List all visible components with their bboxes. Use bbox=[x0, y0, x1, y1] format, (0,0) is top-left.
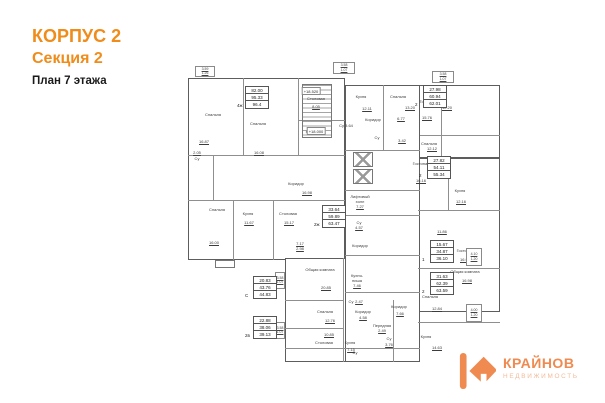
apartment-area-value: 36.10 bbox=[431, 255, 453, 262]
balcony: 4.101.20 bbox=[466, 248, 482, 266]
room-label: Общая комната bbox=[305, 268, 334, 272]
balcony: 3.581.07 bbox=[333, 62, 355, 74]
room-label: Столовая bbox=[315, 341, 333, 345]
apartment-area-value: 63.47 bbox=[323, 220, 345, 227]
room-label: Столовая bbox=[307, 97, 325, 101]
room-label: Кухня bbox=[356, 95, 367, 99]
apartment-area-value: 43.76С bbox=[254, 284, 276, 291]
wall bbox=[345, 190, 420, 191]
room-label: 7.27 bbox=[356, 205, 364, 209]
room-label: 12.76 bbox=[325, 319, 335, 323]
apartment-area-value: 15.67 bbox=[431, 241, 453, 248]
apartment-type: 2 bbox=[415, 102, 418, 107]
room-label: 16.16 bbox=[416, 179, 426, 183]
apartment-area-value: 20.83 bbox=[254, 277, 276, 284]
logo-name: КРАЙНОВ bbox=[503, 356, 579, 371]
apartment-info-box: 27.8254.11255.34 bbox=[427, 156, 451, 179]
room-label: Су bbox=[195, 157, 200, 161]
apartment-type: 2 bbox=[419, 173, 422, 178]
logo-k-house-icon bbox=[458, 350, 496, 392]
apartment-type: 2ж bbox=[314, 222, 320, 227]
room-label: 12.11 bbox=[362, 107, 372, 111]
wall bbox=[418, 322, 500, 323]
wall bbox=[188, 155, 345, 156]
room-label: Кухня bbox=[421, 335, 432, 339]
elevator-shaft bbox=[353, 152, 373, 167]
apartment-area-value: 27.82 bbox=[428, 157, 450, 164]
page: КОРПУС 2 Секция 2 План 7 этажа bbox=[0, 0, 605, 403]
wall bbox=[418, 210, 500, 211]
apartment-type: 2в bbox=[245, 333, 250, 338]
room-label: 12.12 bbox=[427, 147, 437, 151]
wall bbox=[285, 328, 343, 329]
room-label: 2.49 bbox=[378, 329, 386, 333]
apartment-area-value: 22.88 bbox=[254, 317, 276, 324]
room-label: Коридор bbox=[355, 310, 371, 314]
room-label: 16.98 bbox=[462, 279, 472, 283]
wall bbox=[233, 200, 234, 260]
room-label: Спальня bbox=[209, 208, 225, 212]
wall bbox=[345, 215, 420, 216]
room-label: Су bbox=[375, 136, 380, 140]
apartment-area-value: 55.34 bbox=[428, 171, 450, 178]
page-header: КОРПУС 2 Секция 2 План 7 этажа bbox=[32, 24, 121, 87]
wall bbox=[345, 150, 420, 151]
room-label: Кухня bbox=[243, 212, 254, 216]
apartment-info-box: 31.6362.39263.59 bbox=[430, 272, 454, 295]
room-label: Кухня bbox=[455, 189, 466, 193]
room-label: 8.05 bbox=[312, 105, 320, 109]
room-label: Су 3.64 bbox=[339, 124, 353, 128]
room-label: 2.98 bbox=[296, 247, 304, 251]
room-label: 7.66 bbox=[396, 312, 404, 316]
room-label: 4.57 bbox=[355, 226, 363, 230]
room-label: Коридор bbox=[391, 305, 407, 309]
room-label: Коридор bbox=[365, 118, 381, 122]
room-label: Коридор bbox=[352, 244, 368, 248]
room-label: 11.86 bbox=[437, 230, 447, 234]
room-label: 15.17 bbox=[284, 221, 294, 225]
apartment-info-box: 27.9860.94262.01 bbox=[423, 85, 447, 108]
balcony: 3.591.26 bbox=[195, 66, 215, 77]
room-label: 20.85 bbox=[321, 286, 331, 290]
logo-subtitle: НЕДВИЖИМОСТЬ bbox=[503, 373, 579, 380]
apartment-area-value: 31.63 bbox=[431, 273, 453, 280]
room-label: Су bbox=[387, 337, 392, 341]
room-label: Кухня bbox=[345, 341, 356, 345]
elevation-mark: +18.520 bbox=[302, 87, 321, 95]
apartment-info-box: 22.8838.062в39.13 bbox=[253, 316, 277, 339]
apartment-type: С bbox=[245, 293, 248, 298]
room-label: 4.58 bbox=[359, 316, 367, 320]
room-label: 3.42 bbox=[398, 139, 406, 143]
apartment-info-box: 15.6734.87136.10 bbox=[430, 240, 454, 263]
apartment-area-value: 38.062в bbox=[254, 324, 276, 331]
room-label: Спальня bbox=[422, 295, 438, 299]
room-label: 12.84 bbox=[432, 307, 442, 311]
balcony: 4.001.20 bbox=[466, 304, 482, 322]
apartment-area-value: 27.98 bbox=[424, 86, 446, 93]
room-label: 13.20 bbox=[405, 106, 415, 110]
floor-plan-title: План 7 этажа bbox=[32, 75, 121, 87]
elevator-shaft bbox=[353, 169, 373, 184]
apartment-info-box: 33.6459.892ж63.47 bbox=[322, 205, 346, 228]
apartment-area-value: 82.00 bbox=[246, 87, 268, 94]
wall bbox=[273, 200, 274, 260]
apartment-area-value: 63.59 bbox=[431, 287, 453, 294]
wall bbox=[285, 300, 343, 301]
room-label: 14.63 bbox=[432, 346, 442, 350]
apartment-info-box: 82.0095.334ж96.4 bbox=[245, 86, 269, 109]
floor-plan: Спальня16.87Спальня16.08Столовая8.05Кухн… bbox=[183, 60, 523, 372]
apartment-area-value: 34.871 bbox=[431, 248, 453, 255]
room-label: Спальня bbox=[250, 122, 266, 126]
room-label: Спальня bbox=[317, 310, 333, 314]
wall bbox=[243, 78, 244, 155]
room-label: 16.08 bbox=[254, 151, 264, 155]
apartment-area-value: 96.4 bbox=[246, 101, 268, 108]
wall bbox=[343, 258, 344, 362]
wall bbox=[383, 85, 384, 150]
agency-logo: КРАЙНОВ НЕДВИЖИМОСТЬ bbox=[458, 350, 579, 392]
room-label: Столовая bbox=[279, 212, 297, 216]
balcony: 3.581.07 bbox=[432, 71, 454, 83]
room-label: Спальня bbox=[390, 95, 406, 99]
apartment-area-value: 62.392 bbox=[431, 280, 453, 287]
room-label: 7.46 bbox=[353, 284, 361, 288]
apartment-area-value: 95.334ж bbox=[246, 94, 268, 101]
wall bbox=[298, 78, 299, 155]
wall bbox=[188, 200, 345, 201]
room-label: Су bbox=[353, 351, 358, 355]
section-title: Секция 2 bbox=[32, 48, 121, 70]
wall bbox=[393, 300, 394, 362]
entrance-bump bbox=[215, 260, 235, 268]
apartment-type: 1 bbox=[422, 257, 425, 262]
wall bbox=[213, 155, 214, 200]
elevation-mark: +18.000 bbox=[307, 127, 326, 135]
wall bbox=[345, 255, 420, 256]
room-label: 2.05 bbox=[193, 151, 201, 155]
room-label: 10.85 bbox=[324, 333, 334, 337]
apartment-area-value: 62.01 bbox=[424, 100, 446, 107]
room-label: 12.16 bbox=[456, 200, 466, 204]
apartment-area-value: 60.942 bbox=[424, 93, 446, 100]
apartment-type: 4ж bbox=[237, 103, 243, 108]
room-label: Спальня bbox=[205, 113, 221, 117]
apartment-area-value: 59.892ж bbox=[323, 213, 345, 220]
room-label: 6.77 bbox=[397, 117, 405, 121]
wall bbox=[345, 292, 420, 293]
room-label: 16.00 bbox=[209, 241, 219, 245]
room-label: 15.76 bbox=[422, 116, 432, 120]
apartment-area-value: 54.112 bbox=[428, 164, 450, 171]
room-label: 16.98 bbox=[302, 191, 312, 195]
wall bbox=[420, 135, 500, 136]
building-title: КОРПУС 2 bbox=[32, 24, 121, 48]
apartment-area-value: 33.64 bbox=[323, 206, 345, 213]
room-label: Коридор bbox=[288, 182, 304, 186]
apartment-type: 2 bbox=[422, 289, 425, 294]
apartment-area-value: 39.13 bbox=[254, 331, 276, 338]
room-label: Общая комната bbox=[450, 270, 479, 274]
room-label: 16.87 bbox=[199, 140, 209, 144]
room-label: Су bbox=[349, 300, 354, 304]
room-label: 2.47 bbox=[355, 300, 363, 304]
room-label: 3.76 bbox=[385, 343, 393, 347]
room-label: 11.67 bbox=[244, 221, 254, 225]
apartment-area-value: 44.83 bbox=[254, 291, 276, 298]
apartment-info-box: 20.8343.76С44.83 bbox=[253, 276, 277, 299]
